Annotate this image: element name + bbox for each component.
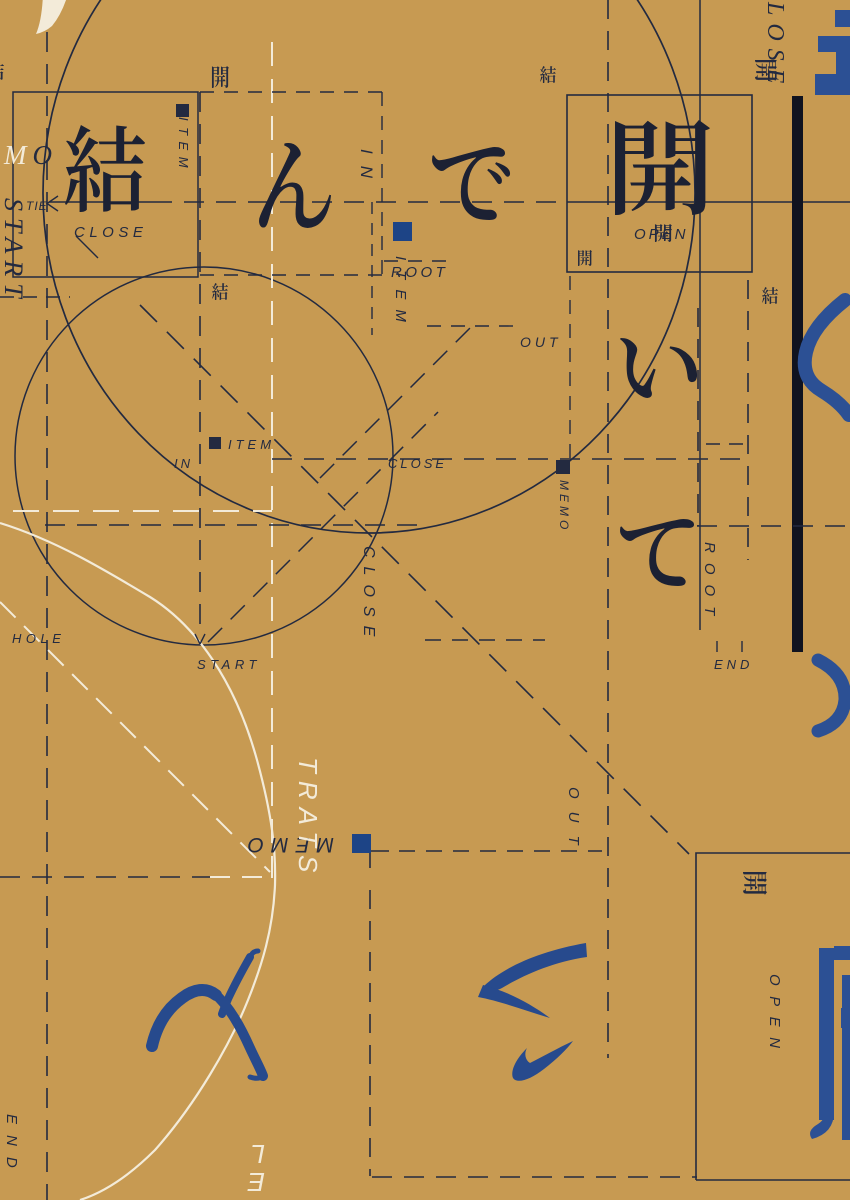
svg-text:CLOSE: CLOSE xyxy=(388,456,447,471)
svg-text:OPEN: OPEN xyxy=(634,226,689,243)
svg-text:ROOT: ROOT xyxy=(701,542,718,625)
svg-text:START: START xyxy=(197,657,261,672)
svg-text:CLOSE: CLOSE xyxy=(74,224,147,241)
svg-text:TIE: TIE xyxy=(26,199,48,213)
svg-text:IN: IN xyxy=(357,149,376,190)
svg-text:CLOSE: CLOSE xyxy=(360,546,377,645)
svg-text:START: START xyxy=(0,198,28,305)
svg-text:OUT: OUT xyxy=(520,334,562,350)
svg-text:MEMO: MEMO xyxy=(557,480,571,533)
svg-text:TRATS: TRATS xyxy=(293,757,323,880)
svg-text:L: L xyxy=(251,1139,265,1169)
svg-text:END: END xyxy=(3,1114,20,1179)
svg-text:ITEM: ITEM xyxy=(228,437,275,452)
svg-text:MO: MO xyxy=(3,140,58,170)
svg-text:E: E xyxy=(247,1167,265,1197)
svg-text:OPEN: OPEN xyxy=(766,974,783,1059)
svg-text:OUT: OUT xyxy=(565,787,582,858)
svg-text:ITEM: ITEM xyxy=(176,117,191,174)
svg-text:IN: IN xyxy=(174,456,193,471)
svg-text:LOSE: LOSE xyxy=(762,1,788,91)
svg-text:HOLE: HOLE xyxy=(12,631,65,646)
svg-text:END: END xyxy=(714,657,753,672)
svg-text:ITEM: ITEM xyxy=(392,256,409,332)
